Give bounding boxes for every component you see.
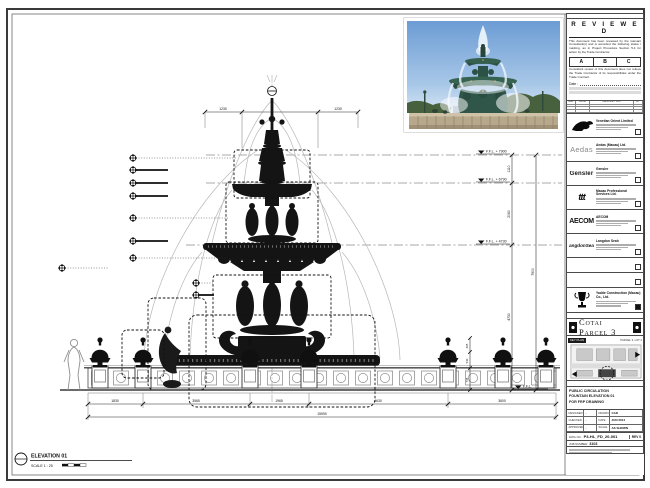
stamp-signature-area — [569, 87, 641, 94]
contractor-trophy-icon — [569, 290, 594, 310]
dwg-no-value: P3-HL_FD_20-001 — [584, 434, 629, 439]
consultant-checkbox[interactable] — [635, 249, 641, 255]
revision-table: REV DATE DESCRIPTION BY — [566, 100, 644, 114]
elevation-scale: SCALE 1 : 25 — [31, 464, 53, 468]
reference-photo — [404, 18, 563, 132]
dwg-no-label: DWG NO. — [569, 435, 582, 439]
top-detail-bubble — [268, 87, 277, 96]
svg-text:1965: 1965 — [275, 399, 283, 403]
consultant-checkbox[interactable] — [635, 279, 641, 285]
job-number-value: 3103 — [589, 442, 597, 446]
stamp-date-line — [580, 85, 641, 86]
svg-text:2060: 2060 — [507, 210, 511, 218]
svg-text:4630: 4630 — [374, 399, 382, 403]
key-plan-map — [568, 343, 644, 380]
stamp-body-1: This document has been reviewed by the r… — [569, 40, 641, 55]
stamp-grade-row: A B C — [569, 57, 641, 67]
consultant-checkbox[interactable] — [635, 264, 641, 270]
stamp-body-2: Consultant review of this document does … — [569, 68, 641, 79]
checked-label: CHECKED — [567, 417, 584, 424]
langdonseah-logo: LangdonSeah — [569, 243, 594, 248]
contractor-name: Yadde Construction (Macau) Co., Ltd. — [596, 292, 641, 300]
svg-text:1230: 1230 — [334, 107, 342, 111]
svg-text:F.F.L. + 4730: F.F.L. + 4730 — [486, 240, 507, 244]
approved-value: - — [584, 425, 597, 432]
svg-text:7900: 7900 — [531, 268, 535, 276]
consultant-name: Langdon Seah — [596, 240, 641, 244]
mps-logo: ttt — [569, 192, 594, 203]
consultant-name: Macau Professional Services Ltd. — [596, 190, 641, 198]
meta-table: DESIGNED - DRAWN CAD CHECKED - DATE JUN … — [566, 409, 644, 433]
review-stamp: R E V I E W E D This document has been r… — [566, 18, 644, 101]
drawn-value: CAD — [610, 410, 643, 417]
consultant-checkbox[interactable] — [635, 153, 641, 159]
gensler-logo: Gensler — [569, 171, 594, 177]
svg-text:735: 735 — [465, 377, 469, 382]
photo-balustrade — [409, 113, 558, 129]
drawing-sheet: F.F.L. + 7900 F.F.L. + 6790 F.F.L. + 473… — [0, 0, 650, 488]
project-name: Cotai Parcel 3 — [579, 318, 631, 336]
key-plan-label: KEY PLAN — [568, 338, 586, 343]
key-plan-panel: KEY PLAN PARCEL 3, LOT 2 — [566, 335, 644, 381]
scale-value: AS SHOWN — [610, 425, 643, 432]
elevation-label: ELEVATION 01 SCALE 1 : 25 — [15, 453, 132, 468]
stamp-date-row: Date : — [569, 82, 641, 86]
contractor-box: Yadde Construction (Macau) Co., Ltd. — [566, 287, 644, 313]
consultant-checkbox[interactable] — [635, 225, 641, 231]
svg-text:1830: 1830 — [111, 399, 119, 403]
consultant-box-venetian: Venetian Orient Limited — [566, 113, 644, 138]
drawing-title-panel: PUBLIC CIRCULATION FOUNTAIN ELEVATION 01… — [566, 386, 644, 410]
consultant-box-aecom: AECOM AECOM — [566, 209, 644, 234]
svg-text:530: 530 — [465, 358, 469, 363]
ornament-icon — [633, 322, 641, 333]
consultant-box-empty-1 — [566, 257, 644, 273]
ornament-icon — [569, 322, 577, 333]
designed-label: DESIGNED — [567, 410, 584, 417]
svg-text:F.F.L.: F.F.L. — [523, 385, 532, 389]
consultant-checkbox[interactable] — [635, 129, 641, 135]
project-name-panel: Cotai Parcel 3 — [566, 318, 644, 336]
consultant-checkbox[interactable] — [635, 177, 641, 183]
title-block: R E V I E W E D This document has been r… — [566, 14, 644, 475]
consultant-name: Venetian Orient Limited — [596, 120, 641, 124]
consultant-name: Aedas (Macau) Ltd. — [596, 144, 641, 148]
consultant-box-aedas: Aedas Aedas (Macau) Ltd. — [566, 137, 644, 162]
scale-bar — [62, 464, 86, 467]
consultant-name: AECOM — [596, 216, 641, 220]
svg-text:1230: 1230 — [219, 107, 227, 111]
approved-label: APPROVED — [567, 425, 584, 432]
photo-lamp-left — [424, 93, 426, 113]
level-lines — [186, 155, 562, 245]
rev-value: REV 0 — [629, 435, 641, 439]
consultant-box-gensler: Gensler Gensler — [566, 161, 644, 186]
consultant-box-mps: ttt Macau Professional Services Ltd. — [566, 185, 644, 210]
key-plan-note: PARCEL 3, LOT 2 — [620, 339, 642, 342]
consultant-box-langdonseah: LangdonSeah Langdon Seah — [566, 233, 644, 258]
contractor-checkbox[interactable] — [635, 304, 641, 310]
grade-b-cell[interactable]: B — [594, 58, 618, 66]
designed-value: - — [584, 410, 597, 417]
elevation-title: ELEVATION 01 — [31, 454, 67, 460]
scale-label: SCALE — [597, 425, 610, 432]
svg-text:3600: 3600 — [498, 399, 506, 403]
fountain-silhouette — [164, 98, 380, 366]
svg-text:3565: 3565 — [192, 399, 200, 403]
grade-a-cell[interactable]: A — [570, 58, 594, 66]
consultant-box-empty-2 — [566, 272, 644, 288]
stamp-date-label: Date : — [569, 82, 578, 86]
venetian-lion-icon — [569, 119, 594, 133]
drawn-label: DRAWN — [597, 410, 610, 417]
consultant-name: Gensler — [596, 168, 641, 172]
job-number-label: JOB NUMBER — [569, 442, 587, 446]
stamp-title: R E V I E W E D — [569, 20, 641, 38]
svg-text:1110: 1110 — [507, 165, 511, 172]
consultant-checkbox[interactable] — [635, 201, 641, 207]
date-label: DATE — [597, 417, 610, 424]
drawing-title-line-3: FOR FRP DRAWING — [569, 400, 641, 405]
aecom-logo: AECOM — [569, 218, 594, 225]
file-info-rows — [566, 446, 644, 454]
svg-text:F.F.L. + 7900: F.F.L. + 7900 — [486, 150, 507, 154]
svg-text:4730: 4730 — [507, 313, 511, 321]
svg-text:F.F.L. + 6790: F.F.L. + 6790 — [486, 178, 507, 182]
checked-value: - — [584, 417, 597, 424]
svg-text:465: 465 — [465, 343, 469, 348]
grade-c-cell[interactable]: C — [617, 58, 640, 66]
date-value: JUN 2014 — [610, 417, 643, 424]
aedas-logo: Aedas — [569, 145, 594, 154]
svg-text:15590: 15590 — [317, 412, 327, 416]
scale-figure — [64, 339, 84, 390]
